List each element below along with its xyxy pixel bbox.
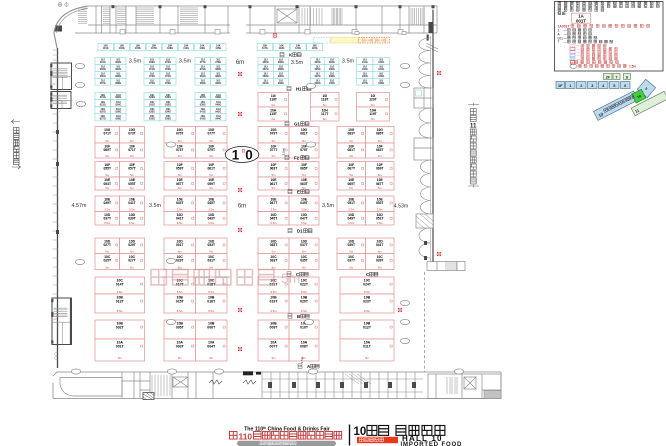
svg-text:043T: 043T xyxy=(207,216,215,220)
svg-text:3.5m: 3.5m xyxy=(301,207,308,211)
svg-text:020T: 020T xyxy=(300,299,309,303)
svg-text:119G: 119G xyxy=(279,47,285,50)
svg-text:104G: 104G xyxy=(378,68,384,71)
svg-text:5: 5 xyxy=(613,84,615,88)
svg-text:049T: 049T xyxy=(347,216,355,220)
svg-text:119T: 119T xyxy=(369,112,376,116)
svg-text:102G: 102G xyxy=(378,61,384,64)
svg-text:IMPORTED FOOD: IMPORTED FOOD xyxy=(401,442,463,446)
svg-text:080G: 080G xyxy=(215,68,221,71)
svg-text:001T: 001T xyxy=(116,344,125,348)
svg-text:070G: 070G xyxy=(165,61,171,64)
svg-text:063G: 063G xyxy=(100,68,106,71)
svg-text:7: 7 xyxy=(616,75,618,79)
svg-text:6.5m: 6.5m xyxy=(301,221,308,225)
svg-text:002T: 002T xyxy=(116,325,125,329)
svg-text:6.5m: 6.5m xyxy=(117,309,124,313)
svg-text:2: 2 xyxy=(580,84,582,88)
svg-text:091G: 091G xyxy=(263,82,269,85)
svg-text:3.5m: 3.5m xyxy=(271,207,278,211)
svg-text:077T: 077T xyxy=(207,132,215,136)
svg-text:077G: 077G xyxy=(200,61,206,64)
svg-text:3.5m: 3.5m xyxy=(291,60,304,66)
svg-text:10: 10 xyxy=(354,426,367,438)
svg-text:6.5m: 6.5m xyxy=(271,290,278,294)
svg-text:071T: 071T xyxy=(128,148,136,152)
svg-text:075T: 075T xyxy=(176,132,184,136)
svg-text:109G: 109G xyxy=(167,47,173,50)
svg-text:031G: 031G xyxy=(149,103,155,106)
svg-text:051T: 051T xyxy=(376,216,384,220)
svg-text:063T: 063T xyxy=(300,182,308,186)
svg-text:101G: 101G xyxy=(362,61,368,64)
svg-text:041T: 041T xyxy=(176,216,184,220)
svg-text:6.5m: 6.5m xyxy=(177,309,184,313)
svg-text:065T: 065T xyxy=(347,182,355,186)
svg-text:038G: 038G xyxy=(215,96,221,99)
svg-text:064G: 064G xyxy=(115,68,121,71)
svg-text:G1: G1 xyxy=(294,122,300,127)
svg-text:113G: 113G xyxy=(199,47,205,50)
svg-text:083T: 083T xyxy=(347,132,355,136)
svg-text:037T: 037T xyxy=(300,243,308,247)
svg-text:8: 8 xyxy=(626,75,628,79)
svg-text:033G: 033G xyxy=(149,110,155,113)
svg-text:4.53m: 4.53m xyxy=(394,204,408,210)
svg-text:6.5m: 6.5m xyxy=(104,221,111,225)
svg-text:073G: 073G xyxy=(149,75,155,78)
svg-text:069T: 069T xyxy=(376,167,384,171)
svg-text:051T: 051T xyxy=(347,201,355,205)
svg-text:034G: 034G xyxy=(165,110,171,113)
svg-text:106G: 106G xyxy=(378,75,384,78)
svg-text:108G: 108G xyxy=(378,82,384,85)
svg-text:037G: 037G xyxy=(200,96,206,99)
svg-text:008T: 008T xyxy=(300,344,309,348)
svg-text:069G: 069G xyxy=(149,61,155,64)
svg-text:012T: 012T xyxy=(363,325,372,329)
svg-text:041T: 041T xyxy=(376,243,384,247)
svg-text:083G: 083G xyxy=(200,82,206,85)
svg-text:3.5m: 3.5m xyxy=(300,356,304,363)
svg-text:005T: 005T xyxy=(176,325,185,329)
svg-text:6.5m: 6.5m xyxy=(348,221,355,225)
svg-text:074G: 074G xyxy=(165,75,171,78)
svg-text:039T: 039T xyxy=(103,201,111,205)
svg-text:019T: 019T xyxy=(270,299,279,303)
svg-text:010T: 010T xyxy=(300,325,309,329)
svg-text:014T: 014T xyxy=(116,282,125,286)
svg-text:045T: 045T xyxy=(270,216,278,220)
svg-text:3.5m: 3.5m xyxy=(282,148,286,155)
svg-text:085T: 085T xyxy=(376,132,384,136)
svg-text:033T: 033T xyxy=(207,243,215,247)
svg-text:062G: 062G xyxy=(115,61,121,64)
svg-text:6.5m: 6.5m xyxy=(364,290,371,294)
svg-text:6.5m: 6.5m xyxy=(271,309,278,313)
svg-text:107G: 107G xyxy=(362,82,368,85)
svg-text:067G: 067G xyxy=(100,82,106,85)
svg-text:085G: 085G xyxy=(263,61,269,64)
svg-text:3.5m: 3.5m xyxy=(342,59,355,65)
svg-text:053T: 053T xyxy=(376,201,384,205)
svg-text:022G: 022G xyxy=(115,96,121,99)
svg-text:3.5m: 3.5m xyxy=(179,59,192,65)
svg-text:075T: 075T xyxy=(207,148,215,152)
svg-text:029G: 029G xyxy=(149,96,155,99)
svg-text:041T: 041T xyxy=(128,201,136,205)
svg-text:011T: 011T xyxy=(363,344,372,348)
svg-text:107G: 107G xyxy=(151,47,157,50)
svg-text:059T: 059T xyxy=(207,182,215,186)
svg-text:057T: 057T xyxy=(128,167,136,171)
svg-text:6.5m: 6.5m xyxy=(364,309,371,313)
svg-text:061T: 061T xyxy=(207,167,215,171)
svg-text:047T: 047T xyxy=(270,201,278,205)
svg-text:004T: 004T xyxy=(207,344,216,348)
svg-text:103G: 103G xyxy=(362,68,368,71)
svg-text:022T: 022T xyxy=(300,282,309,286)
svg-text:3.5m: 3.5m xyxy=(177,207,184,211)
svg-text:009T: 009T xyxy=(270,325,279,329)
svg-text:105G: 105G xyxy=(362,75,368,78)
svg-text:027G: 027G xyxy=(100,117,106,120)
svg-text:5m: 5m xyxy=(281,270,300,286)
svg-text:039T: 039T xyxy=(128,216,136,220)
svg-text:121G: 121G xyxy=(295,47,301,50)
svg-text:3.5m: 3.5m xyxy=(104,207,111,211)
svg-text:032G: 032G xyxy=(165,103,171,106)
svg-text:053T: 053T xyxy=(103,182,111,186)
svg-text:123G: 123G xyxy=(312,47,318,50)
svg-text:067T: 067T xyxy=(376,182,384,186)
svg-text:D1: D1 xyxy=(297,229,303,234)
svg-text:035T: 035T xyxy=(270,243,278,247)
svg-text:079T: 079T xyxy=(270,132,278,136)
svg-text:6.5m: 6.5m xyxy=(301,290,308,294)
svg-text:061T: 061T xyxy=(270,182,278,186)
svg-text:039G: 039G xyxy=(200,103,206,106)
svg-text:081T: 081T xyxy=(300,132,308,136)
svg-text:069T: 069T xyxy=(103,148,111,152)
svg-text:098G: 098G xyxy=(329,75,335,78)
svg-text:1F: 1F xyxy=(558,84,563,88)
svg-text:115G: 115G xyxy=(215,47,221,50)
svg-text:120T: 120T xyxy=(369,98,377,102)
svg-text:081T: 081T xyxy=(347,148,355,152)
svg-text:013T: 013T xyxy=(116,299,125,303)
svg-text:11: 11 xyxy=(470,123,477,130)
svg-text:029T: 029T xyxy=(176,259,184,263)
svg-text:028G: 028G xyxy=(115,117,121,120)
svg-text:0: 0 xyxy=(245,148,253,163)
svg-text:066G: 066G xyxy=(115,75,121,78)
svg-text:099G: 099G xyxy=(315,82,321,85)
svg-text:035T: 035T xyxy=(300,259,308,263)
svg-text:041G: 041G xyxy=(200,110,206,113)
svg-text:4.57m: 4.57m xyxy=(72,203,87,209)
svg-text:039T: 039T xyxy=(347,243,355,247)
svg-text:3: 3 xyxy=(591,84,593,88)
svg-text:055T: 055T xyxy=(103,167,111,171)
svg-text:3.5m: 3.5m xyxy=(348,207,355,211)
svg-text:—: — xyxy=(577,57,580,61)
svg-text:117G: 117G xyxy=(262,47,268,50)
svg-text:084G: 084G xyxy=(215,82,221,85)
svg-text:027T: 027T xyxy=(128,259,136,263)
svg-text:039T: 039T xyxy=(376,259,384,263)
svg-text:043T: 043T xyxy=(176,201,184,205)
svg-text:023G: 023G xyxy=(100,103,106,106)
svg-text:073T: 073T xyxy=(176,148,184,152)
svg-text:097G: 097G xyxy=(315,75,321,78)
svg-text:118T: 118T xyxy=(321,98,328,102)
svg-text:043G: 043G xyxy=(200,117,206,120)
svg-text:105G: 105G xyxy=(135,47,141,50)
svg-text:072G: 072G xyxy=(165,68,171,71)
svg-text:083T: 083T xyxy=(376,148,384,152)
svg-text:077T: 077T xyxy=(270,148,278,152)
svg-text:115T: 115T xyxy=(270,112,277,116)
svg-text:033T: 033T xyxy=(270,259,278,263)
svg-text:3.5m: 3.5m xyxy=(129,59,142,65)
svg-text:110: 110 xyxy=(239,431,253,441)
svg-text:065T: 065T xyxy=(300,167,308,171)
svg-text:100G: 100G xyxy=(329,82,335,85)
svg-text:078G: 078G xyxy=(215,61,221,64)
svg-text:029T: 029T xyxy=(128,243,136,247)
svg-text:116T: 116T xyxy=(270,98,277,102)
svg-text:024G: 024G xyxy=(115,103,121,106)
svg-text:016T: 016T xyxy=(207,299,216,303)
svg-text:023T: 023T xyxy=(363,299,372,303)
svg-text:006T: 006T xyxy=(207,325,216,329)
svg-text:042G: 042G xyxy=(215,110,221,113)
svg-text:075G: 075G xyxy=(149,82,155,85)
svg-text:071T: 071T xyxy=(103,132,111,136)
svg-text:1: 1 xyxy=(569,84,571,88)
svg-text:6.5m: 6.5m xyxy=(271,221,278,225)
svg-text:087G: 087G xyxy=(263,68,269,71)
svg-text:081G: 081G xyxy=(200,75,206,78)
svg-text:092G: 092G xyxy=(278,82,284,85)
svg-text:096G: 096G xyxy=(329,68,335,71)
svg-text:065G: 065G xyxy=(100,75,106,78)
svg-text:H1: H1 xyxy=(296,87,302,92)
svg-text:101G: 101G xyxy=(103,47,109,50)
svg-text:E: E xyxy=(297,190,300,195)
svg-text:117T: 117T xyxy=(321,112,328,116)
svg-text:073T: 073T xyxy=(128,132,136,136)
svg-text:001T: 001T xyxy=(576,18,586,23)
svg-text:6m: 6m xyxy=(238,204,246,210)
svg-text:6.5m: 6.5m xyxy=(129,221,136,225)
svg-text:088G: 088G xyxy=(278,68,284,71)
svg-text:045T: 045T xyxy=(207,201,215,205)
svg-text:025T: 025T xyxy=(103,259,111,263)
svg-text:T: T xyxy=(558,40,560,44)
svg-text:1.5m: 1.5m xyxy=(629,64,636,68)
svg-text:049T: 049T xyxy=(300,201,308,205)
svg-text:6.5m: 6.5m xyxy=(177,221,184,225)
svg-text:024T: 024T xyxy=(363,282,372,286)
svg-text:3.5m: 3.5m xyxy=(129,207,136,211)
svg-text:021G: 021G xyxy=(100,96,106,99)
svg-text:067T: 067T xyxy=(347,167,355,171)
svg-text:037T: 037T xyxy=(103,216,111,220)
svg-text:3.5m: 3.5m xyxy=(208,207,215,211)
svg-text:079G: 079G xyxy=(200,68,206,71)
svg-text:111G: 111G xyxy=(183,47,189,50)
svg-text:086G: 086G xyxy=(278,61,284,64)
svg-text:007T: 007T xyxy=(270,344,279,348)
svg-text:026G: 026G xyxy=(115,110,121,113)
svg-text:061G: 061G xyxy=(100,61,106,64)
svg-text:076G: 076G xyxy=(165,82,171,85)
svg-text:082G: 082G xyxy=(215,75,221,78)
svg-text:040G: 040G xyxy=(215,103,221,106)
svg-text:3.5m: 3.5m xyxy=(149,203,161,209)
svg-text:093G: 093G xyxy=(315,61,321,64)
svg-text:6.5m: 6.5m xyxy=(117,290,124,294)
svg-text:031T: 031T xyxy=(176,243,184,247)
svg-text:6.5m: 6.5m xyxy=(177,290,184,294)
svg-text:6: 6 xyxy=(624,84,626,88)
svg-text:047T: 047T xyxy=(300,216,308,220)
svg-text:057T: 057T xyxy=(176,182,184,186)
svg-text:F2: F2 xyxy=(294,156,300,161)
svg-text:6.5m: 6.5m xyxy=(208,221,215,225)
svg-text:059T: 059T xyxy=(176,167,184,171)
svg-text:1: 1 xyxy=(232,148,240,163)
svg-text:044G: 044G xyxy=(215,117,221,120)
svg-text:3.5m: 3.5m xyxy=(322,203,334,209)
svg-text:B: B xyxy=(297,314,300,319)
svg-text:003T: 003T xyxy=(176,344,185,348)
svg-text:035G: 035G xyxy=(149,117,155,120)
svg-text:094G: 094G xyxy=(329,61,335,64)
svg-text:031T: 031T xyxy=(207,259,215,263)
svg-text:103G: 103G xyxy=(119,47,125,50)
svg-text:055T: 055T xyxy=(128,182,136,186)
svg-text:6.5m: 6.5m xyxy=(208,290,215,294)
svg-text:089G: 089G xyxy=(263,75,269,78)
svg-text:027T: 027T xyxy=(103,243,111,247)
svg-text:6.5m: 6.5m xyxy=(301,309,308,313)
svg-text:036G: 036G xyxy=(165,117,171,120)
svg-text:6.5m: 6.5m xyxy=(208,309,215,313)
svg-text:068G: 068G xyxy=(115,82,121,85)
svg-text:063T: 063T xyxy=(270,167,278,171)
svg-text:6.5m: 6.5m xyxy=(377,221,384,225)
svg-text:025G: 025G xyxy=(100,110,106,113)
svg-text:071G: 071G xyxy=(149,68,155,71)
svg-text:037T: 037T xyxy=(347,259,355,263)
svg-text:030G: 030G xyxy=(165,96,171,99)
svg-text:095G: 095G xyxy=(315,68,321,71)
svg-text:015T: 015T xyxy=(176,299,185,303)
svg-text:079T: 079T xyxy=(300,148,308,152)
svg-text:6m: 6m xyxy=(236,60,244,66)
svg-text:3.5m: 3.5m xyxy=(377,207,384,211)
svg-text:090G: 090G xyxy=(278,75,284,78)
